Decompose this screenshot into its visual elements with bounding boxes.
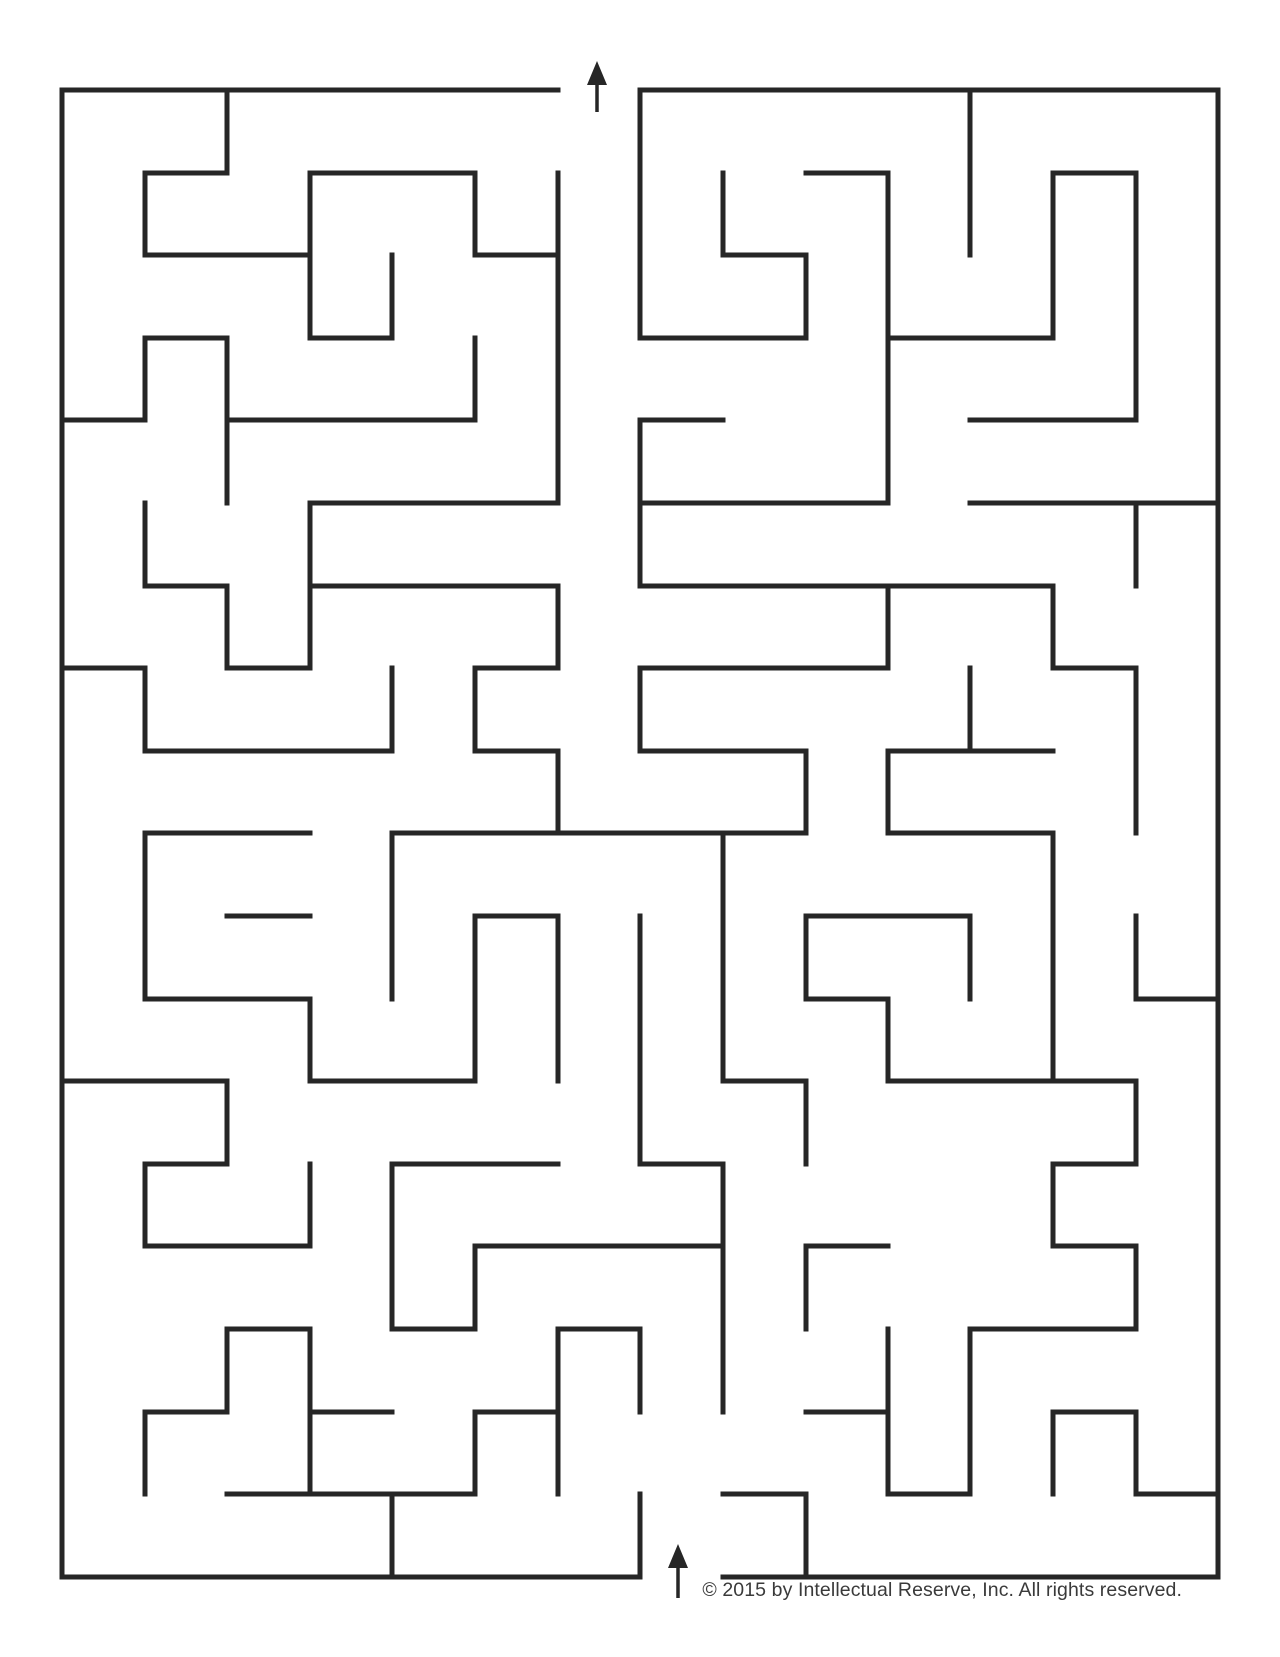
worksheet-page: © 2015 by Intellectual Reserve, Inc. All… [0, 0, 1280, 1657]
copyright-text: © 2015 by Intellectual Reserve, Inc. All… [702, 1578, 1182, 1602]
maze [0, 0, 1280, 1657]
maze-entrance-arrow [668, 1544, 688, 1598]
maze-exit-arrow [587, 61, 607, 112]
